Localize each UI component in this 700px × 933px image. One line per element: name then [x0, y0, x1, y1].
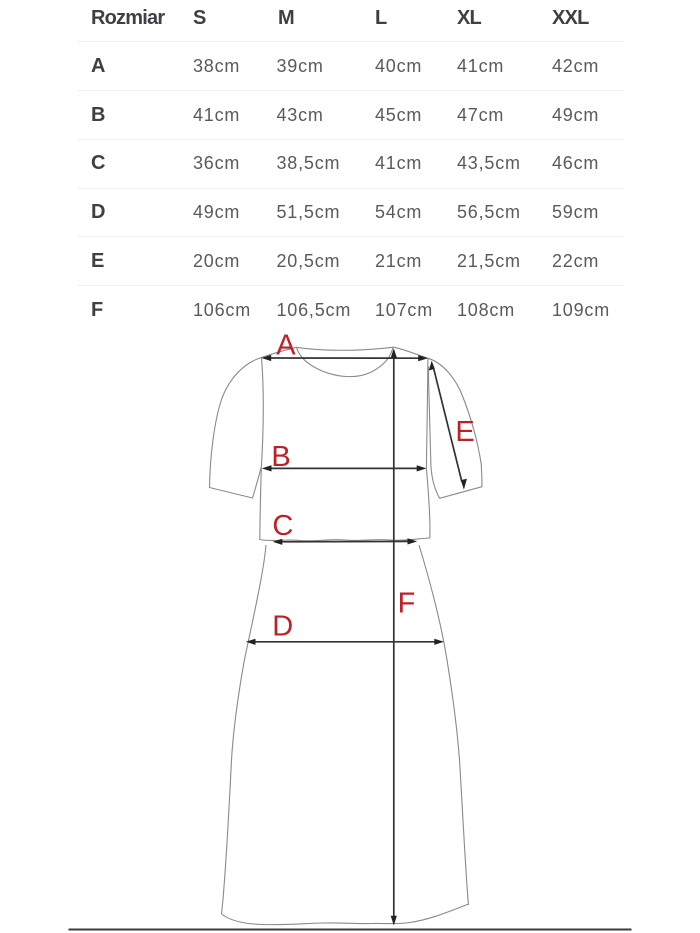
svg-text:D: D [272, 610, 293, 642]
svg-text:A: A [276, 330, 296, 362]
svg-text:E: E [455, 416, 474, 448]
svg-text:F: F [398, 587, 416, 619]
svg-text:B: B [271, 441, 290, 473]
svg-text:C: C [272, 510, 293, 542]
